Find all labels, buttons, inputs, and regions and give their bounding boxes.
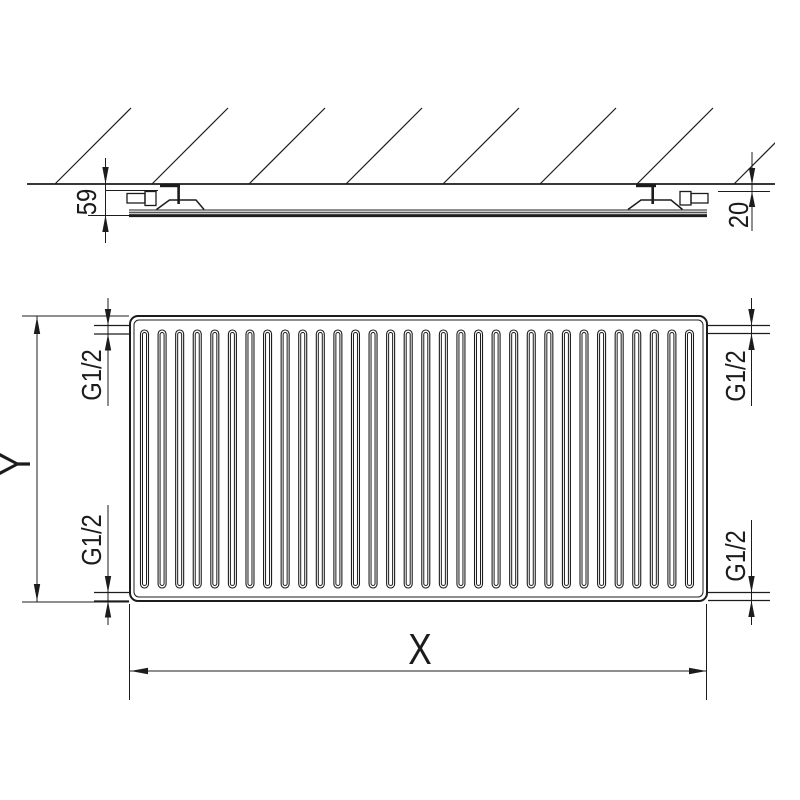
channel-slot-inner bbox=[283, 333, 287, 586]
arrow-down-icon bbox=[34, 584, 40, 601]
channel-slot-outer bbox=[633, 330, 641, 588]
channel-slot-inner bbox=[371, 333, 375, 586]
channel-slot-inner bbox=[687, 333, 691, 586]
channel-slot-outer bbox=[228, 330, 236, 588]
channel-slot-inner bbox=[336, 333, 340, 586]
channel-slot-inner bbox=[248, 333, 252, 586]
dimension-thread-top-right: G1/2 bbox=[719, 298, 755, 406]
radiator-technical-drawing: 59 20 bbox=[0, 0, 800, 800]
channel-slot-outer bbox=[545, 330, 553, 588]
channel-slot-outer bbox=[387, 330, 395, 588]
channel-slot-inner bbox=[266, 333, 270, 586]
width-dimension-label: X bbox=[408, 625, 431, 674]
connection-stub-bottom-right bbox=[708, 593, 770, 601]
channel-slot-outer bbox=[316, 330, 324, 588]
mounting-bracket-left bbox=[157, 184, 205, 210]
channel-slot-inner bbox=[617, 333, 621, 586]
channel-slot-inner bbox=[512, 333, 516, 586]
channel-slot-outer bbox=[281, 330, 289, 588]
channel-slot-outer bbox=[615, 330, 623, 588]
dimension-width: X bbox=[130, 604, 708, 700]
hatch-line bbox=[152, 108, 228, 184]
channel-slot-outer bbox=[650, 330, 658, 588]
channel-slot-outer bbox=[475, 330, 483, 588]
arrow-up-icon bbox=[102, 215, 108, 232]
channel-slot-inner bbox=[160, 333, 164, 586]
channel-slot-outer bbox=[562, 330, 570, 588]
channel-slot-outer bbox=[685, 330, 693, 588]
channel-slot-inner bbox=[195, 333, 199, 586]
connection-stub-top-left bbox=[94, 326, 129, 335]
thread-label: G1/2 bbox=[75, 514, 107, 566]
thread-label: G1/2 bbox=[75, 349, 107, 401]
channel-slot-inner bbox=[389, 333, 393, 586]
channel-slot-inner bbox=[670, 333, 674, 586]
depth-dimension-label: 59 bbox=[70, 189, 102, 215]
channel-slot-outer bbox=[510, 330, 518, 588]
arrow-down-icon bbox=[105, 309, 111, 326]
channel-slot-inner bbox=[406, 333, 410, 586]
arrow-down-icon bbox=[105, 576, 111, 593]
channel-slot-inner bbox=[178, 333, 182, 586]
front-view: G1/2 G1/2 G1/2 G1/2 bbox=[0, 298, 770, 700]
valve-left bbox=[127, 192, 156, 206]
channel-slot-inner bbox=[424, 333, 428, 586]
channel-slot-outer bbox=[492, 330, 500, 588]
channel-slot-outer bbox=[422, 330, 430, 588]
channel-slot-inner bbox=[459, 333, 463, 586]
drawing-canvas: 59 20 bbox=[0, 0, 800, 800]
mounting-bracket-right bbox=[628, 184, 683, 210]
wall-hatch bbox=[55, 108, 800, 184]
channel-slot-outer bbox=[299, 330, 307, 588]
channel-slot-outer bbox=[264, 330, 272, 588]
dimension-depth: 59 bbox=[70, 158, 109, 243]
channel-slot-outer bbox=[404, 330, 412, 588]
hatch-line bbox=[346, 108, 422, 184]
channel-slot-outer bbox=[211, 330, 219, 588]
thread-label: G1/2 bbox=[719, 350, 751, 402]
channel-slot-outer bbox=[351, 330, 359, 588]
channel-slot-outer bbox=[598, 330, 606, 588]
channel-slot-inner bbox=[635, 333, 639, 586]
hatch-line bbox=[540, 108, 616, 184]
arrow-down-icon bbox=[748, 309, 754, 326]
channel-slot-inner bbox=[230, 333, 234, 586]
channel-slot-inner bbox=[494, 333, 498, 586]
thread-label: G1/2 bbox=[719, 530, 751, 582]
arrow-down-icon bbox=[749, 168, 755, 185]
channel-slot-inner bbox=[529, 333, 533, 586]
channel-slot-inner bbox=[213, 333, 217, 586]
channel-slot-inner bbox=[477, 333, 481, 586]
channel-slots bbox=[141, 330, 694, 588]
hatch-line bbox=[249, 108, 325, 184]
channel-slot-outer bbox=[193, 330, 201, 588]
channel-slot-outer bbox=[580, 330, 588, 588]
channel-slot-outer bbox=[439, 330, 447, 588]
arrow-left-icon bbox=[131, 668, 149, 674]
dimension-thread-top-left: G1/2 bbox=[75, 298, 111, 406]
height-dimension-label: Y bbox=[0, 452, 40, 475]
channel-slot-inner bbox=[301, 333, 305, 586]
arrow-up-icon bbox=[34, 317, 40, 334]
connection-stub-bottom-left bbox=[94, 593, 129, 602]
channel-slot-inner bbox=[318, 333, 322, 586]
hatch-line bbox=[734, 108, 800, 184]
arrow-down-icon bbox=[102, 167, 108, 184]
channel-slot-inner bbox=[564, 333, 568, 586]
hatch-line bbox=[443, 108, 519, 184]
channel-slot-outer bbox=[176, 330, 184, 588]
channel-slot-outer bbox=[457, 330, 465, 588]
channel-slot-outer bbox=[246, 330, 254, 588]
channel-slot-inner bbox=[582, 333, 586, 586]
valve-right bbox=[680, 192, 708, 206]
hatch-line bbox=[55, 108, 131, 184]
arrow-up-icon bbox=[748, 601, 754, 618]
dimension-height: Y bbox=[0, 316, 129, 602]
arrow-up-icon bbox=[748, 334, 754, 351]
channel-slot-inner bbox=[547, 333, 551, 586]
channel-slot-inner bbox=[600, 333, 604, 586]
dimension-thread-bottom-right: G1/2 bbox=[719, 520, 755, 625]
arrow-up-icon bbox=[105, 601, 111, 618]
side-view: 59 20 bbox=[27, 108, 800, 243]
wall-gap-dimension-label: 20 bbox=[722, 202, 754, 228]
channel-slot-inner bbox=[441, 333, 445, 586]
dimension-thread-bottom-left: G1/2 bbox=[75, 505, 111, 625]
channel-slot-outer bbox=[141, 330, 149, 588]
channel-slot-outer bbox=[527, 330, 535, 588]
radiator-panel-edge bbox=[129, 210, 707, 216]
channel-slot-outer bbox=[668, 330, 676, 588]
arrow-right-icon bbox=[689, 668, 707, 674]
connection-stub-top-right bbox=[708, 326, 770, 334]
channel-slot-inner bbox=[353, 333, 357, 586]
channel-slot-inner bbox=[143, 333, 147, 586]
hatch-line bbox=[637, 108, 713, 184]
channel-slot-inner bbox=[652, 333, 656, 586]
channel-slot-outer bbox=[369, 330, 377, 588]
channel-slot-outer bbox=[158, 330, 166, 588]
arrow-up-icon bbox=[105, 334, 111, 351]
channel-slot-outer bbox=[334, 330, 342, 588]
